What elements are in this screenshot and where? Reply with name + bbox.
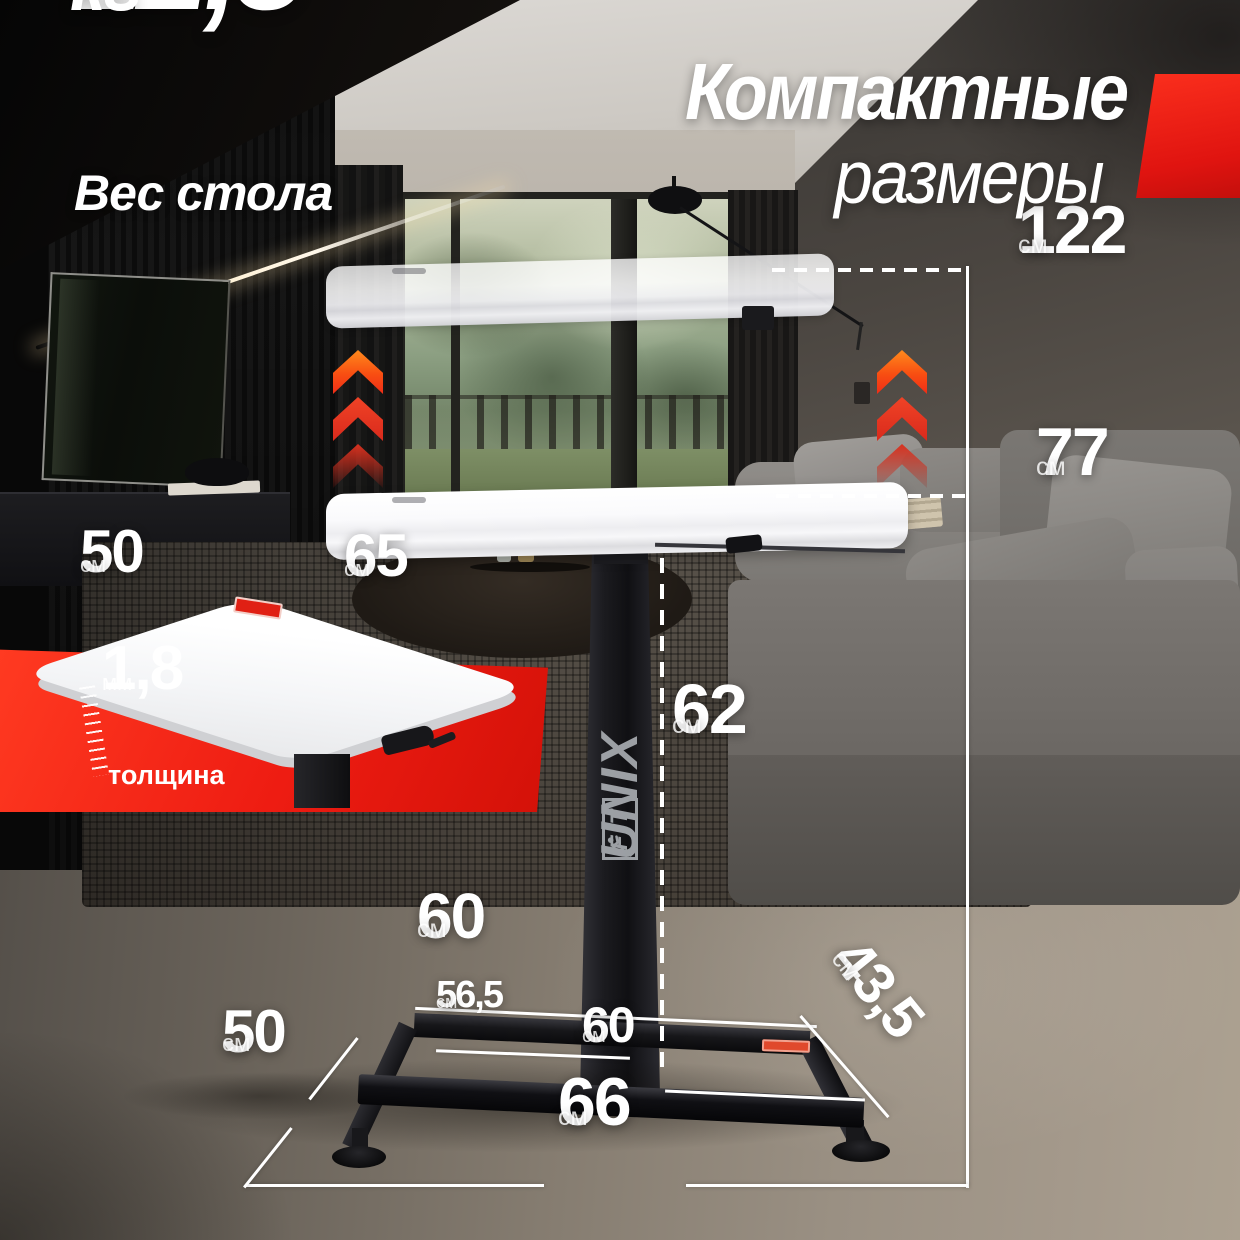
light-switch — [854, 382, 870, 404]
tv-reflection — [52, 279, 101, 477]
dim-dash-max-height — [772, 268, 968, 272]
lamp-clamp — [742, 306, 774, 330]
dim-unit: см — [436, 993, 457, 1014]
window-mullion — [451, 199, 460, 541]
dim-unit: см — [672, 713, 702, 744]
dim-thickness-caption: толщина — [108, 760, 225, 791]
dim-unit: см — [80, 554, 106, 582]
cable-slot — [392, 268, 426, 274]
dim-dash-frame-height — [660, 558, 664, 1070]
weight-caption: Вес стола — [74, 164, 332, 222]
base-foot — [832, 1140, 890, 1162]
title-line2: размеры — [835, 140, 1103, 215]
dim-unit: см — [222, 1032, 251, 1062]
dim-line-height — [966, 266, 969, 1188]
cable-slot — [392, 497, 426, 503]
dim-dash-min-height — [776, 494, 968, 498]
product-infographic: UNIX FIT 122 см 77 см 62 — [0, 0, 1240, 1240]
dim-unit: см — [1036, 455, 1066, 486]
dim-unit: см — [344, 558, 370, 586]
sofa-front — [728, 755, 1240, 905]
dim-unit: мм — [102, 672, 132, 700]
unix-fit-logo: UNIX FIT — [582, 690, 658, 1030]
base-foot — [332, 1146, 386, 1168]
dim-unit: см — [417, 917, 447, 948]
dim-unit: см — [1018, 233, 1048, 264]
dim-line-outer-width — [246, 1184, 544, 1187]
dim-unit: см — [582, 1026, 606, 1050]
sofa-seat — [728, 580, 1240, 772]
dim-line-outer-width — [686, 1184, 968, 1187]
base-label — [762, 1039, 810, 1053]
runner-icon — [606, 832, 634, 860]
dim-unit: см — [558, 1105, 588, 1136]
lamp-head — [648, 186, 702, 214]
inset-column — [294, 754, 350, 808]
decor-bowl — [185, 458, 249, 486]
title-line1: Компактные — [685, 52, 1126, 132]
tv-screen — [42, 272, 231, 488]
weight-unit: кг — [70, 0, 139, 32]
tray — [470, 562, 590, 572]
